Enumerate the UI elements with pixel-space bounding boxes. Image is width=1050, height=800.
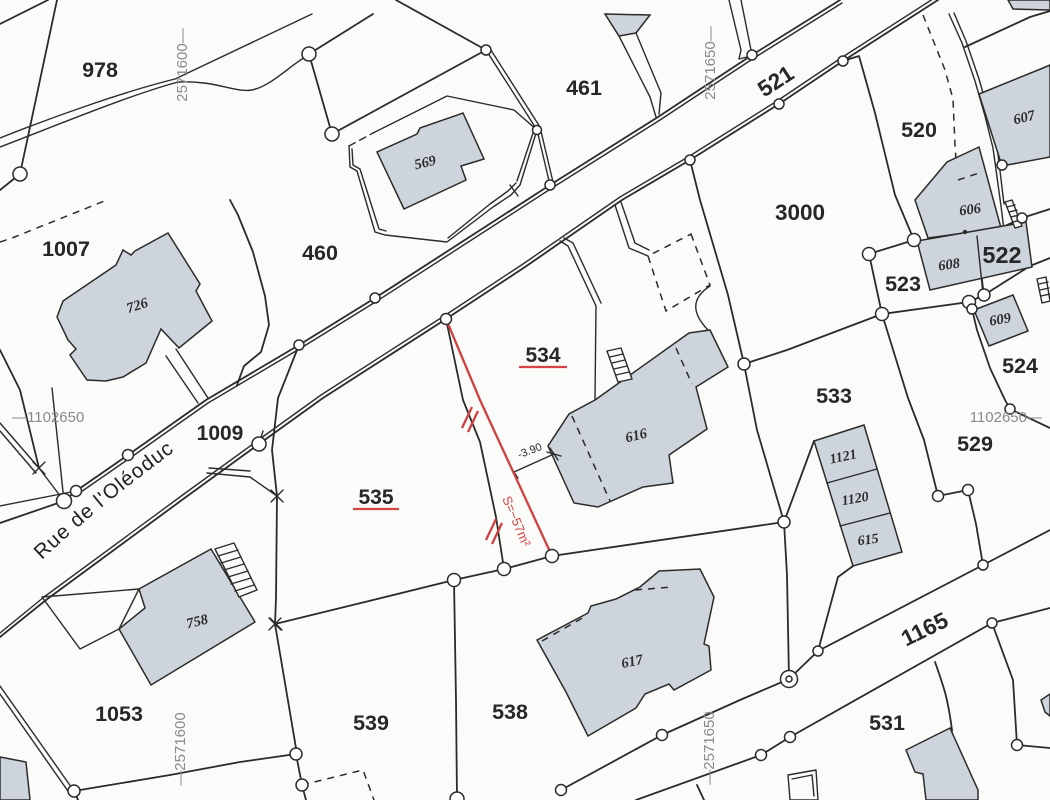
svg-text:534: 534 xyxy=(525,344,560,367)
svg-text:538: 538 xyxy=(492,700,528,724)
svg-text:1007: 1007 xyxy=(42,237,90,261)
svg-text:533: 533 xyxy=(816,384,852,408)
svg-text:531: 531 xyxy=(869,711,905,735)
svg-text:1053: 1053 xyxy=(95,702,143,726)
svg-text:2571600—: 2571600— xyxy=(174,28,191,101)
svg-text:460: 460 xyxy=(302,241,338,265)
svg-text:—2571650: —2571650 xyxy=(701,711,718,784)
svg-text:524: 524 xyxy=(1002,354,1038,378)
svg-text:529: 529 xyxy=(957,432,993,456)
svg-text:461: 461 xyxy=(566,76,602,100)
svg-text:523: 523 xyxy=(885,272,921,296)
svg-text:—2571600: —2571600 xyxy=(172,712,189,785)
svg-text:522: 522 xyxy=(982,242,1021,268)
svg-text:539: 539 xyxy=(353,711,389,735)
svg-text:3000: 3000 xyxy=(775,200,825,225)
svg-text:608: 608 xyxy=(937,255,962,274)
svg-text:615: 615 xyxy=(857,532,880,550)
svg-text:1102650—: 1102650— xyxy=(970,409,1042,426)
svg-text:2571650—: 2571650— xyxy=(702,26,719,99)
svg-text:—1102650: —1102650 xyxy=(12,409,84,426)
svg-text:535: 535 xyxy=(358,486,393,509)
svg-text:520: 520 xyxy=(901,118,937,142)
svg-text:978: 978 xyxy=(82,58,118,82)
svg-text:606: 606 xyxy=(958,200,983,219)
svg-text:1009: 1009 xyxy=(197,422,244,445)
